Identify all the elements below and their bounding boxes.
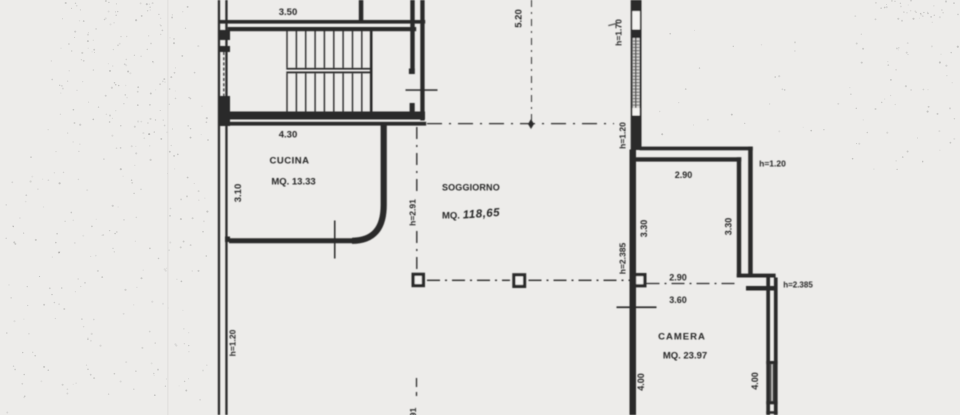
svg-text:3.30: 3.30 <box>724 218 734 236</box>
svg-text:CAMERA: CAMERA <box>658 332 706 343</box>
svg-text:3.10: 3.10 <box>233 184 244 203</box>
svg-text:4.30: 4.30 <box>279 130 298 141</box>
svg-text:CUCINA: CUCINA <box>270 156 310 167</box>
svg-text:h=1.20: h=1.20 <box>618 122 628 149</box>
svg-text:SOGGIORNO: SOGGIORNO <box>442 183 500 193</box>
svg-text:h=1.20: h=1.20 <box>759 159 786 169</box>
svg-text:h=2.91: h=2.91 <box>408 407 418 415</box>
svg-text:4.00: 4.00 <box>636 373 646 391</box>
svg-text:3.60: 3.60 <box>669 295 687 305</box>
svg-text:4.00: 4.00 <box>750 372 760 390</box>
svg-text:h=1.20: h=1.20 <box>228 329 238 356</box>
svg-text:h=2.385: h=2.385 <box>783 281 813 290</box>
svg-text:2.90: 2.90 <box>669 273 687 283</box>
svg-text:3.50: 3.50 <box>279 7 298 18</box>
svg-text:2.90: 2.90 <box>675 170 693 180</box>
svg-text:3.30: 3.30 <box>639 220 649 238</box>
svg-text:MQ. 23.97: MQ. 23.97 <box>663 351 707 362</box>
svg-text:h=1.70: h=1.70 <box>614 19 624 46</box>
svg-text:MQ. 13.33: MQ. 13.33 <box>271 177 315 188</box>
svg-text:MQ.: MQ. <box>442 211 460 222</box>
svg-text:h=2.91: h=2.91 <box>408 199 418 226</box>
svg-text:h=2.385: h=2.385 <box>618 243 628 275</box>
svg-text:5.20: 5.20 <box>514 9 525 28</box>
